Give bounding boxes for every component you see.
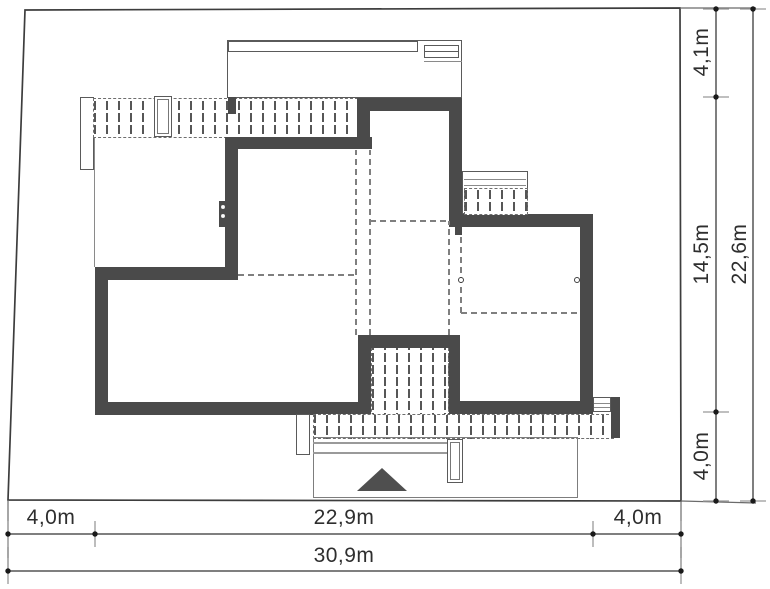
- hinge-dot: [221, 214, 225, 218]
- roof-outline: [227, 40, 462, 98]
- dashed-line: [448, 221, 450, 335]
- site-plan-canvas: 4,0m 22,9m 4,0m 30,9m 4,1m 14,5m 4,0m 22…: [0, 0, 770, 589]
- wall-top-upper: [357, 98, 462, 111]
- porch-column-left: [296, 414, 310, 455]
- door-pivot-block: [455, 227, 462, 235]
- dashed-line: [370, 220, 449, 222]
- roof-edge-line: [424, 61, 462, 62]
- point-marker: [458, 277, 464, 283]
- wall-east: [580, 214, 593, 414]
- entrance-step-line: [313, 452, 448, 454]
- wall-left-lower: [95, 267, 108, 415]
- side-steps-east: [593, 397, 611, 412]
- porch-column-right: [447, 439, 463, 483]
- entrance-porch: [313, 437, 578, 498]
- point-marker: [574, 277, 580, 283]
- dashed-line: [461, 312, 578, 314]
- hinge-dot: [221, 205, 225, 209]
- entrance-arrow-icon: [357, 468, 407, 491]
- wall-right-upper: [449, 98, 462, 227]
- terrace-deck-north: [93, 98, 358, 138]
- entrance-step-line: [313, 442, 448, 444]
- wall-top-central: [225, 137, 372, 149]
- dim-bottom-left: 4,0m: [27, 506, 76, 530]
- dim-bottom-total: 30,9m: [314, 544, 375, 568]
- retaining-wall-east: [611, 397, 620, 438]
- dim-right-top: 4,1m: [690, 28, 714, 77]
- dim-bottom-center: 22,9m: [314, 506, 375, 530]
- dim-right-total: 22,6m: [728, 224, 752, 285]
- wall-step-left: [95, 267, 238, 280]
- dim-right-bottom: 4,0m: [690, 432, 714, 481]
- dashed-line: [355, 150, 357, 335]
- dashed-line: [460, 228, 462, 313]
- terrace-deck-south: [313, 414, 614, 439]
- dashed-line: [369, 150, 371, 335]
- terrace-edge-left: [80, 97, 94, 170]
- chimney: [154, 96, 172, 137]
- balcony-east-deck: [464, 188, 528, 215]
- dim-bottom-right: 4,0m: [614, 506, 663, 530]
- roof-edge-bar: [424, 51, 459, 58]
- drain-block: [228, 97, 236, 114]
- wall-south-east: [460, 401, 593, 414]
- roof-skylight-bar: [228, 41, 418, 52]
- wall-step-east: [449, 214, 593, 227]
- dim-right-middle: 14,5m: [690, 224, 714, 285]
- wall-staircase-north: [358, 335, 460, 348]
- dashed-line: [238, 274, 355, 276]
